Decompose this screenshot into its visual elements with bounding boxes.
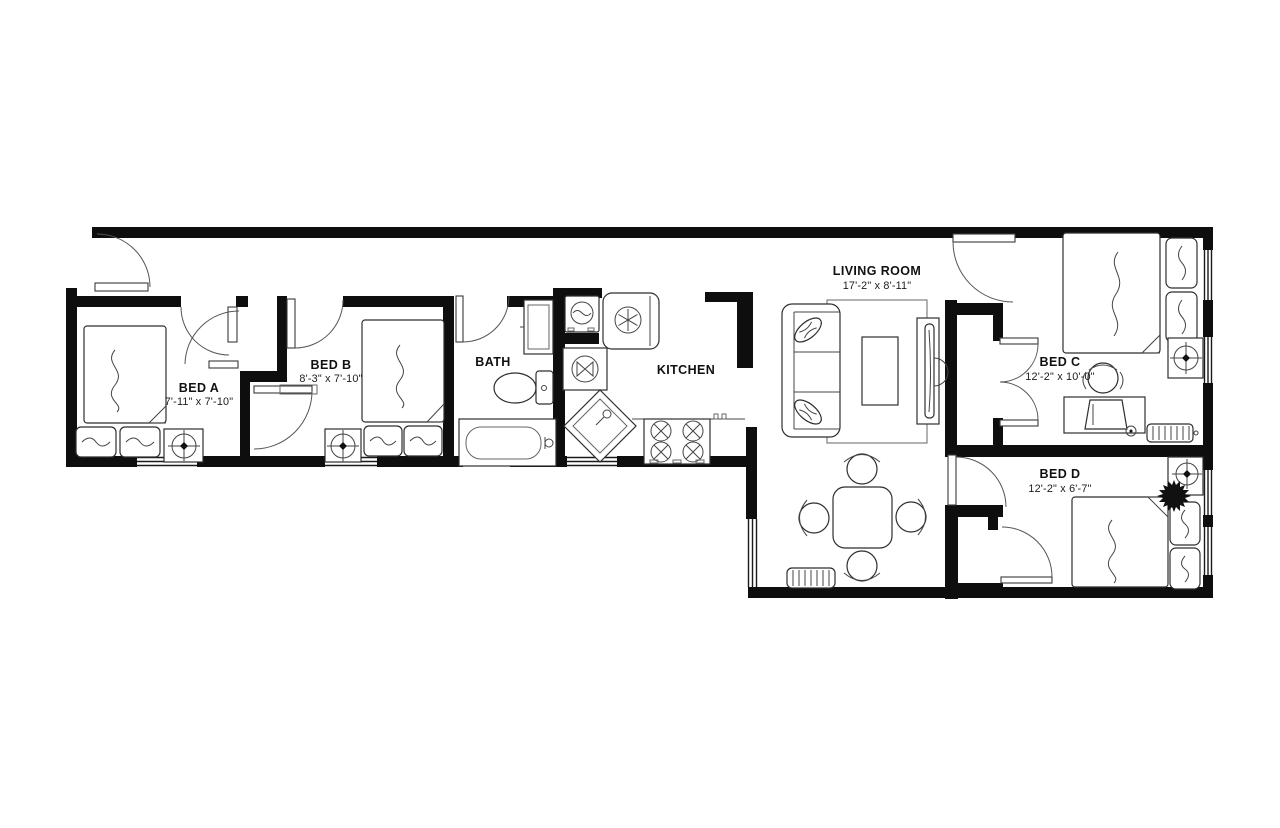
dims-living-room: 17'-2" x 8'-11" xyxy=(843,280,912,292)
window-dining xyxy=(749,519,757,587)
exterior-walls xyxy=(66,227,1213,598)
coffee-table xyxy=(862,337,898,405)
wall-bedc-bedd-divider xyxy=(945,445,1213,457)
room-bath xyxy=(459,300,556,466)
room-bed-d xyxy=(1072,457,1203,589)
pillow xyxy=(1170,548,1200,589)
wall-closet-c-top xyxy=(945,303,1003,315)
bed-b-door xyxy=(287,299,343,348)
nightstand-lamp xyxy=(1168,338,1203,378)
wall-closet-d-bottom xyxy=(945,583,1003,595)
wall-ab-jog xyxy=(240,371,287,382)
dims-bed-b: 8'-3" x 7'-10" xyxy=(299,373,362,385)
wall-right-seg1 xyxy=(1203,227,1213,250)
wall-ab-divider-lower xyxy=(240,382,250,467)
bed-d-door xyxy=(948,455,1006,507)
room-living xyxy=(782,300,948,443)
tv-console xyxy=(917,318,948,424)
bed-b-closet-door xyxy=(254,386,312,449)
label-kitchen: KITCHEN xyxy=(657,363,715,377)
label-bed-a: BED A xyxy=(179,381,219,395)
kitchen-sink xyxy=(564,390,636,462)
label-living-room: LIVING ROOM xyxy=(833,264,921,278)
wall-ab-divider-upper xyxy=(277,296,287,371)
bath-door xyxy=(456,296,509,342)
label-bed-d: BED D xyxy=(1040,467,1081,481)
dims-bed-a: 7'-11" x 7'-10" xyxy=(165,396,234,408)
room-bed-c xyxy=(1063,233,1203,442)
wall-hall-pillar xyxy=(236,296,248,307)
window-bed-c-2 xyxy=(1205,337,1212,383)
counter-tick xyxy=(714,414,718,419)
sofa xyxy=(782,304,840,437)
pillow xyxy=(364,426,402,456)
radiator xyxy=(1147,424,1198,442)
desk xyxy=(1064,397,1145,436)
label-bed-c: BED C xyxy=(1040,355,1081,369)
closet-d-door xyxy=(1001,527,1052,583)
floor-plan-page: BED A 7'-11" x 7'-10" BED B 8'-3" x 7'-1… xyxy=(0,0,1280,828)
bed-a-door xyxy=(181,307,237,355)
wall-bed-a-top xyxy=(66,296,181,307)
window-kitchen xyxy=(567,458,617,466)
dims-bed-c: 12'-2" x 10'-0" xyxy=(1025,371,1094,383)
entry-door xyxy=(95,234,150,291)
wall-right-seg4 xyxy=(1203,515,1213,527)
toilet xyxy=(494,371,553,404)
dining-area xyxy=(787,454,926,588)
window-bed-d-2 xyxy=(1205,527,1212,575)
floor-plan-svg: BED A 7'-11" x 7'-10" BED B 8'-3" x 7'-1… xyxy=(0,0,1280,828)
wall-bath-left xyxy=(443,296,454,467)
vanity xyxy=(520,300,553,354)
pillow xyxy=(1166,292,1197,342)
window-bed-c-1 xyxy=(1205,250,1212,300)
nightstand-lamp xyxy=(325,429,361,462)
wall-living-bedc-divider xyxy=(945,300,957,445)
bed-c-door xyxy=(953,234,1015,302)
wall-closet-d-top xyxy=(945,505,1003,517)
wall-closet-d-stub xyxy=(988,517,998,530)
dining-chair xyxy=(844,454,880,484)
pillow xyxy=(404,426,442,456)
exhaust-fan-counter xyxy=(563,348,607,390)
pillow xyxy=(76,427,116,457)
wall-closet-c-stub1 xyxy=(993,315,1003,341)
radiator xyxy=(787,568,835,588)
wall-dining-left xyxy=(746,427,757,519)
laptop xyxy=(1085,400,1127,429)
pillow xyxy=(120,427,160,457)
dining-chair xyxy=(799,500,829,536)
pillow xyxy=(1166,238,1197,288)
room-kitchen xyxy=(563,293,745,464)
bed xyxy=(1063,233,1160,353)
bed xyxy=(84,326,166,423)
refrigerator xyxy=(603,293,659,349)
wall-left xyxy=(66,288,77,467)
wall-bed-b-top xyxy=(343,296,445,307)
dining-chair xyxy=(896,499,926,535)
counter-tick xyxy=(722,414,726,419)
wall-laundry-bottom xyxy=(553,333,599,344)
wall-top xyxy=(92,227,1213,238)
wall-kitchen-stub-v xyxy=(737,292,753,368)
dims-bed-d: 12'-2" x 6'-7" xyxy=(1028,483,1091,495)
washing-machine xyxy=(565,296,599,332)
wall-bottom-left-seg2 xyxy=(197,456,325,467)
dining-chair xyxy=(844,551,880,581)
label-bath: BATH xyxy=(475,355,510,369)
bathtub xyxy=(459,419,556,466)
range-stove xyxy=(644,419,710,464)
dining-table xyxy=(833,487,892,548)
window-bed-d-1 xyxy=(1205,470,1212,515)
wall-right-seg2 xyxy=(1203,300,1213,337)
bed xyxy=(1072,497,1168,587)
nightstand-lamp xyxy=(164,429,203,462)
label-bed-b: BED B xyxy=(311,358,352,372)
